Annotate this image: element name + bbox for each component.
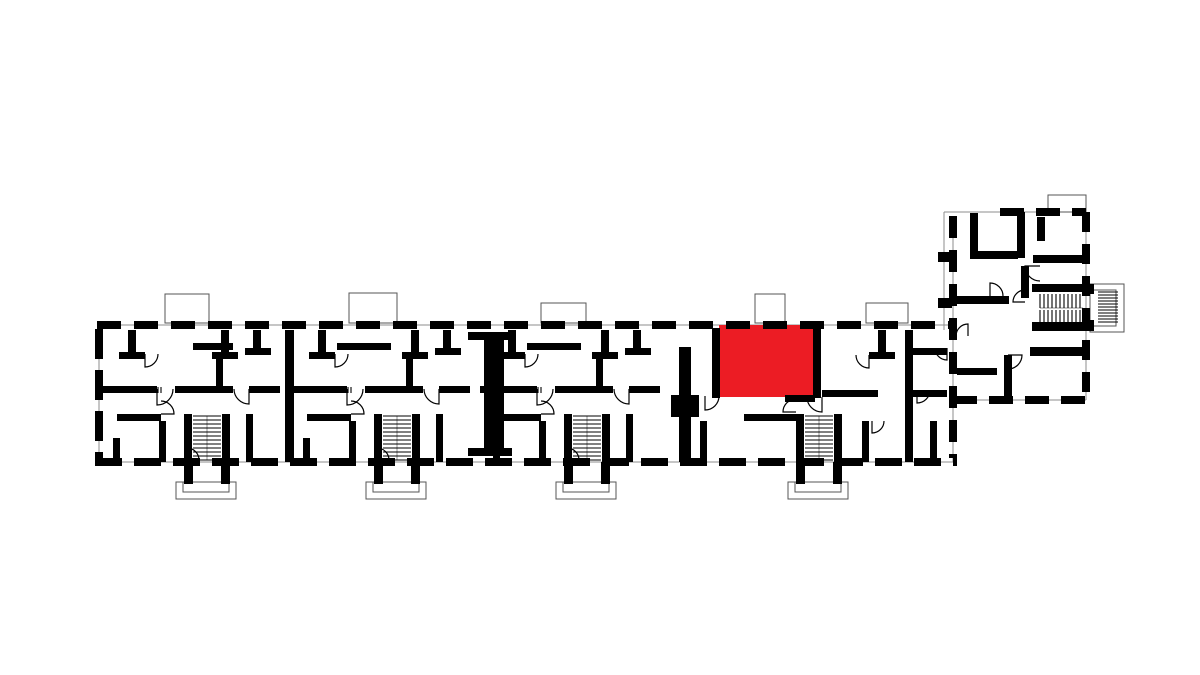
wall-segment xyxy=(555,386,613,393)
wall-segment xyxy=(970,213,978,257)
wall-segment xyxy=(285,330,294,462)
balcony-outline xyxy=(349,293,397,323)
wall-segment xyxy=(468,448,512,456)
wall-segment xyxy=(484,334,504,456)
wall-segment xyxy=(337,343,391,350)
wall-segment xyxy=(439,386,470,393)
wall-segment xyxy=(309,352,335,359)
door-arc xyxy=(541,401,554,414)
wall-segment xyxy=(700,421,707,462)
wall-segment xyxy=(307,414,351,421)
floor-plan-page xyxy=(0,0,1200,675)
wall-segment xyxy=(246,414,253,462)
door-arc xyxy=(856,355,869,368)
entrance-porch-outline xyxy=(788,482,848,499)
stair-landing-outline xyxy=(1090,284,1124,332)
door-arc xyxy=(335,354,348,367)
highlighted-unit[interactable] xyxy=(719,325,813,397)
wall-segment xyxy=(957,368,997,375)
wall-segment xyxy=(412,414,420,462)
door-arc xyxy=(537,389,553,405)
wall-segment xyxy=(862,421,869,462)
wall-segment xyxy=(592,352,618,359)
door-arc xyxy=(351,401,364,414)
wall-segment xyxy=(1021,266,1029,298)
entrance-porch-outline xyxy=(366,482,426,499)
wall-segment xyxy=(249,386,280,393)
balcony-outline xyxy=(541,303,586,323)
wall-segment xyxy=(970,251,1018,259)
balcony-outline xyxy=(165,294,209,323)
wall-segment xyxy=(193,343,233,350)
door-arc xyxy=(157,389,173,405)
wall-segment xyxy=(212,352,238,359)
door-arc xyxy=(990,283,1003,296)
wall-segment xyxy=(527,343,581,350)
wall-segment xyxy=(222,414,230,462)
wall-segment xyxy=(671,395,699,417)
wall-segment xyxy=(834,414,842,462)
wall-segment xyxy=(712,328,720,398)
wall-segment xyxy=(744,414,796,421)
wall-segment xyxy=(602,414,610,462)
door-arc xyxy=(145,354,158,367)
floor-plan-drawing xyxy=(0,0,1200,675)
wall-segment xyxy=(913,348,947,355)
door-arc xyxy=(424,389,439,404)
wall-segment xyxy=(629,386,660,393)
door-arc xyxy=(234,389,249,404)
door-arc xyxy=(525,354,538,367)
entrance-porch-outline xyxy=(556,482,616,499)
door-arc xyxy=(614,389,629,404)
door-arc xyxy=(705,396,719,410)
wall-segment xyxy=(564,414,572,462)
door-arc xyxy=(347,389,363,405)
balcony-outline xyxy=(866,303,908,323)
wall-segment xyxy=(216,357,223,386)
wall-segment xyxy=(930,421,937,462)
wall-segment xyxy=(175,386,233,393)
wall-segment xyxy=(435,348,461,355)
door-arc xyxy=(161,401,174,414)
wall-segment xyxy=(245,348,271,355)
wall-segment xyxy=(1037,217,1045,241)
wall-segment xyxy=(402,352,428,359)
wall-segment xyxy=(117,414,161,421)
wall-segment xyxy=(1032,284,1084,292)
wall-segment xyxy=(1017,212,1025,258)
wall-segment xyxy=(822,390,878,397)
wall-segment xyxy=(813,328,821,398)
wall-segment xyxy=(625,348,651,355)
door-arc xyxy=(956,324,968,336)
wall-segment xyxy=(365,386,423,393)
wall-segment xyxy=(1032,322,1084,331)
wall-segment xyxy=(1033,255,1086,263)
wall-segment xyxy=(1030,347,1088,356)
wall-segment xyxy=(374,414,382,462)
wall-segment xyxy=(796,414,804,462)
wall-segment xyxy=(539,421,546,462)
wall-segment xyxy=(406,357,413,386)
wall-segment xyxy=(596,357,603,386)
wall-segment xyxy=(905,330,913,462)
wall-segment xyxy=(957,296,1009,304)
wall-segment xyxy=(119,352,145,359)
door-arc xyxy=(872,421,884,433)
wall-segment xyxy=(184,414,192,462)
wall-segment xyxy=(869,352,895,359)
wall-segment xyxy=(626,414,633,462)
balcony-outline xyxy=(755,294,785,323)
wall-segment xyxy=(349,421,356,462)
entrance-porch-outline xyxy=(176,482,236,499)
wall-segment xyxy=(1004,355,1012,400)
wall-segment xyxy=(159,421,166,462)
wall-segment xyxy=(436,414,443,462)
